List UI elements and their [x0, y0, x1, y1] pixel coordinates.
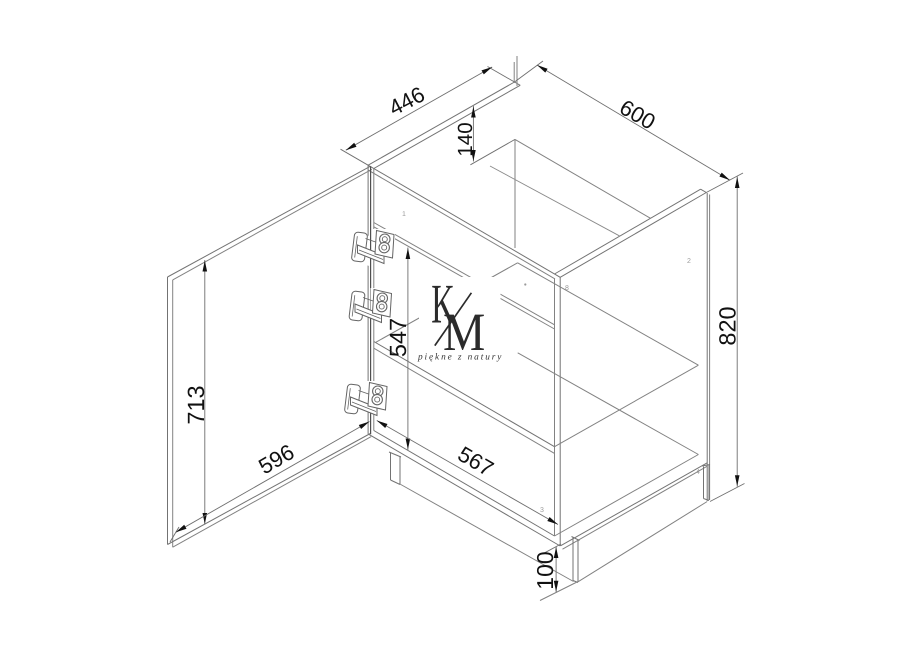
svg-text:8: 8: [565, 285, 569, 292]
svg-text:820: 820: [715, 306, 741, 345]
svg-text:100: 100: [532, 551, 558, 589]
svg-text:3: 3: [540, 507, 544, 514]
svg-text:567: 567: [454, 441, 498, 481]
svg-text:547: 547: [385, 318, 411, 357]
svg-text:600: 600: [615, 95, 659, 135]
svg-text:140: 140: [454, 122, 477, 156]
svg-text:1: 1: [402, 211, 406, 218]
svg-text:596: 596: [254, 439, 298, 479]
svg-text:piękne z natury: piękne z natury: [417, 353, 503, 363]
svg-text:4: 4: [696, 469, 700, 476]
svg-text:713: 713: [183, 385, 209, 424]
svg-text:446: 446: [385, 81, 429, 120]
svg-text:2: 2: [687, 258, 691, 265]
